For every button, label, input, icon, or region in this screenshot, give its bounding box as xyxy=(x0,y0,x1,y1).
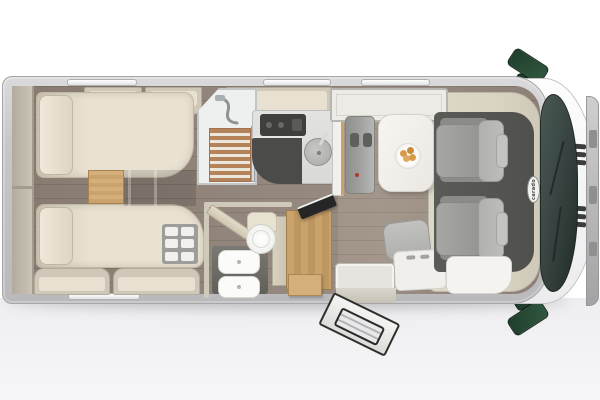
plate-of-croissants xyxy=(395,143,421,169)
window-top-rear xyxy=(67,79,137,86)
rack-slot xyxy=(181,252,194,261)
dinette-table xyxy=(378,114,434,192)
seat-cushion xyxy=(436,202,484,256)
croissant-icon xyxy=(407,147,414,154)
latch-icon xyxy=(420,254,429,258)
toilet xyxy=(246,224,276,254)
cab-seat-driver xyxy=(436,118,506,182)
dinette-bench xyxy=(345,116,375,194)
rack-slot xyxy=(165,227,178,236)
cab-entry-cabinet xyxy=(446,256,512,294)
latch-icon xyxy=(406,255,415,259)
seat-cushion xyxy=(436,124,484,178)
overhead-locker xyxy=(34,268,110,295)
headrest-icon xyxy=(363,133,372,147)
rack-slot xyxy=(181,227,194,236)
bed-steps-floor xyxy=(124,170,196,206)
kitchen-sink xyxy=(304,138,332,166)
entry-interior-step xyxy=(336,264,394,290)
locker-face xyxy=(39,277,105,291)
washbasin xyxy=(218,250,260,274)
rack-slot xyxy=(165,252,178,261)
bed-step-wood xyxy=(88,170,124,204)
panel-inner-line xyxy=(336,94,442,116)
seatbelt-button-icon xyxy=(355,173,359,177)
rear-shelf-divider xyxy=(12,186,34,189)
cab-seat-passenger xyxy=(436,196,506,260)
overhead-locker xyxy=(113,268,200,295)
shower-slat-floor xyxy=(209,128,251,182)
shoe-rack xyxy=(162,224,198,264)
burner-icon xyxy=(278,122,284,128)
bed-cushion-top xyxy=(39,95,73,175)
headrest-icon xyxy=(350,133,359,147)
drain-icon xyxy=(317,151,321,155)
locker-face xyxy=(118,277,195,291)
toilet-seat-ring xyxy=(252,230,270,248)
wardrobe-step xyxy=(288,274,322,296)
step-edge xyxy=(128,170,131,206)
rack-slot xyxy=(165,239,178,248)
bathroom-wall xyxy=(204,202,209,298)
shower-head-icon xyxy=(213,94,243,126)
bumper-detail xyxy=(589,130,597,148)
washbasin-reflection xyxy=(218,276,260,298)
step-edge xyxy=(154,170,157,206)
croissant-icon xyxy=(409,154,416,161)
ground-background xyxy=(0,298,600,400)
shower-cubicle xyxy=(197,88,257,185)
hob-control xyxy=(292,119,302,131)
floorplan-render: carado xyxy=(0,0,600,400)
bathroom-wall xyxy=(204,202,292,207)
seat-headrest xyxy=(496,212,508,246)
bumper-detail xyxy=(589,242,597,256)
brand-badge-text: carado xyxy=(531,179,537,200)
window-top-dinette xyxy=(361,79,430,86)
rack-slot xyxy=(181,239,194,248)
seat-headrest xyxy=(496,134,508,168)
bed-cushion-bottom xyxy=(39,207,73,265)
bumper-detail xyxy=(589,186,597,204)
burner-icon xyxy=(266,122,272,128)
hob xyxy=(260,114,306,136)
faucet-dot xyxy=(237,260,241,264)
rear-storage-shelf xyxy=(12,86,34,294)
faucet-dot xyxy=(237,285,241,289)
brand-badge: carado xyxy=(527,176,540,203)
window-top-kitchen xyxy=(263,79,331,86)
